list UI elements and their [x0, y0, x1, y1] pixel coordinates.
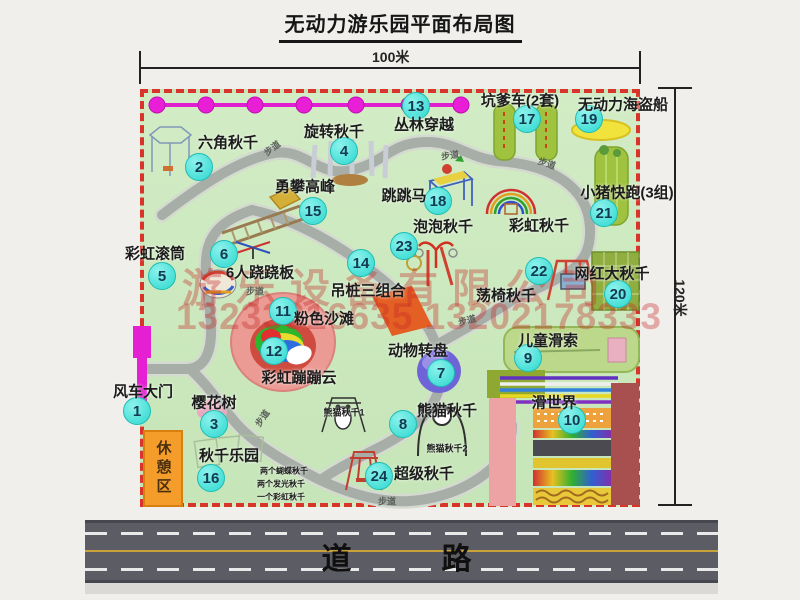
dimension-tick-top — [658, 87, 692, 89]
attraction-label-20: 网红大秋千 — [574, 263, 649, 284]
extra-label-1: 熊猫秋千1 — [323, 406, 364, 419]
attraction-badge-5: 5 — [148, 262, 176, 290]
attraction-label-7: 动物转盘 — [388, 340, 448, 361]
attraction-label-3: 樱花树 — [191, 392, 236, 413]
attraction-label-9: 儿童滑索 — [518, 330, 578, 351]
attraction-badge-16: 16 — [197, 464, 225, 492]
attraction-badge-11: 11 — [269, 297, 297, 325]
attraction-label-2: 六角秋千 — [198, 132, 258, 153]
attraction-badge-12: 12 — [260, 337, 288, 365]
rest-area-label: 休憩区 — [153, 440, 174, 497]
park-layout-diagram: 无动力游乐园平面布局图 100米 120米 — [0, 0, 800, 600]
extra-label-5: 一个彩虹秋千 — [257, 492, 305, 503]
dimension-tick-left — [139, 51, 141, 84]
road: 道 路 — [85, 520, 718, 583]
rest-area-box: 休憩区 — [143, 430, 183, 507]
attraction-label-14: 吊桩三组合 — [330, 280, 405, 301]
walkway-label-6: 步道 — [378, 495, 396, 508]
attraction-badge-14: 14 — [347, 249, 375, 277]
attraction-label-24: 超级秋千 — [394, 463, 454, 484]
attraction-label-22: 荡椅秋千 — [476, 285, 536, 306]
attraction-label-6: 6人跷跷板 — [226, 262, 294, 283]
attraction-label-16: 秋千乐园 — [199, 445, 259, 466]
extra-label-3: 两个蝴蝶秋千 — [260, 466, 308, 477]
walkway-label-1: 步道 — [440, 147, 460, 162]
dimension-height-label: 120米 — [670, 278, 690, 318]
attraction-badge-3: 3 — [200, 410, 228, 438]
page-title: 无动力游乐园平面布局图 — [0, 8, 800, 43]
dimension-width-label: 100米 — [372, 47, 409, 67]
attraction-badge-18: 18 — [424, 187, 452, 215]
extra-label-2: 熊猫秋千2 — [426, 442, 467, 455]
attraction-label-23: 泡泡秋千 — [413, 216, 473, 237]
attraction-badge-22: 22 — [525, 257, 553, 285]
attraction-badge-15: 15 — [299, 197, 327, 225]
attraction-label-13: 丛林穿越 — [394, 114, 454, 135]
attraction-label-11: 粉色沙滩 — [294, 308, 354, 329]
extra-label-4: 两个发光秋千 — [257, 479, 305, 490]
attraction-label-8: 熊猫秋千 — [417, 400, 477, 421]
attraction-badge-2: 2 — [185, 153, 213, 181]
attraction-badge-24: 24 — [365, 462, 393, 490]
attraction-label-18: 跳跳马 — [381, 185, 426, 206]
dimension-line-horizontal — [140, 67, 640, 69]
attraction-label-1: 风车大门 — [113, 381, 173, 402]
attraction-label-4: 旋转秋千 — [304, 121, 364, 142]
attraction-label-12: 彩虹蹦蹦云 — [261, 367, 336, 388]
attraction-label-15: 勇攀高峰 — [275, 176, 335, 197]
extra-label-0: 彩虹秋千 — [509, 215, 569, 236]
attraction-badge-8: 8 — [389, 410, 417, 438]
dimension-tick-bottom — [658, 504, 692, 506]
walkway-label-3: 步道 — [246, 285, 264, 298]
attraction-badge-7: 7 — [427, 359, 455, 387]
attraction-label-19: 无动力海盗船 — [578, 94, 668, 115]
dimension-tick-right — [639, 51, 641, 84]
attraction-label-17: 坑爹车(2套) — [481, 90, 559, 111]
attraction-label-21: 小猪快跑(3组) — [580, 182, 673, 203]
road-label: 道 路 — [85, 534, 718, 578]
attraction-label-5: 彩虹滚筒 — [125, 243, 185, 264]
attraction-badge-21: 21 — [590, 199, 618, 227]
attraction-badge-20: 20 — [604, 280, 632, 308]
attraction-label-10: 滑世界 — [531, 392, 576, 413]
